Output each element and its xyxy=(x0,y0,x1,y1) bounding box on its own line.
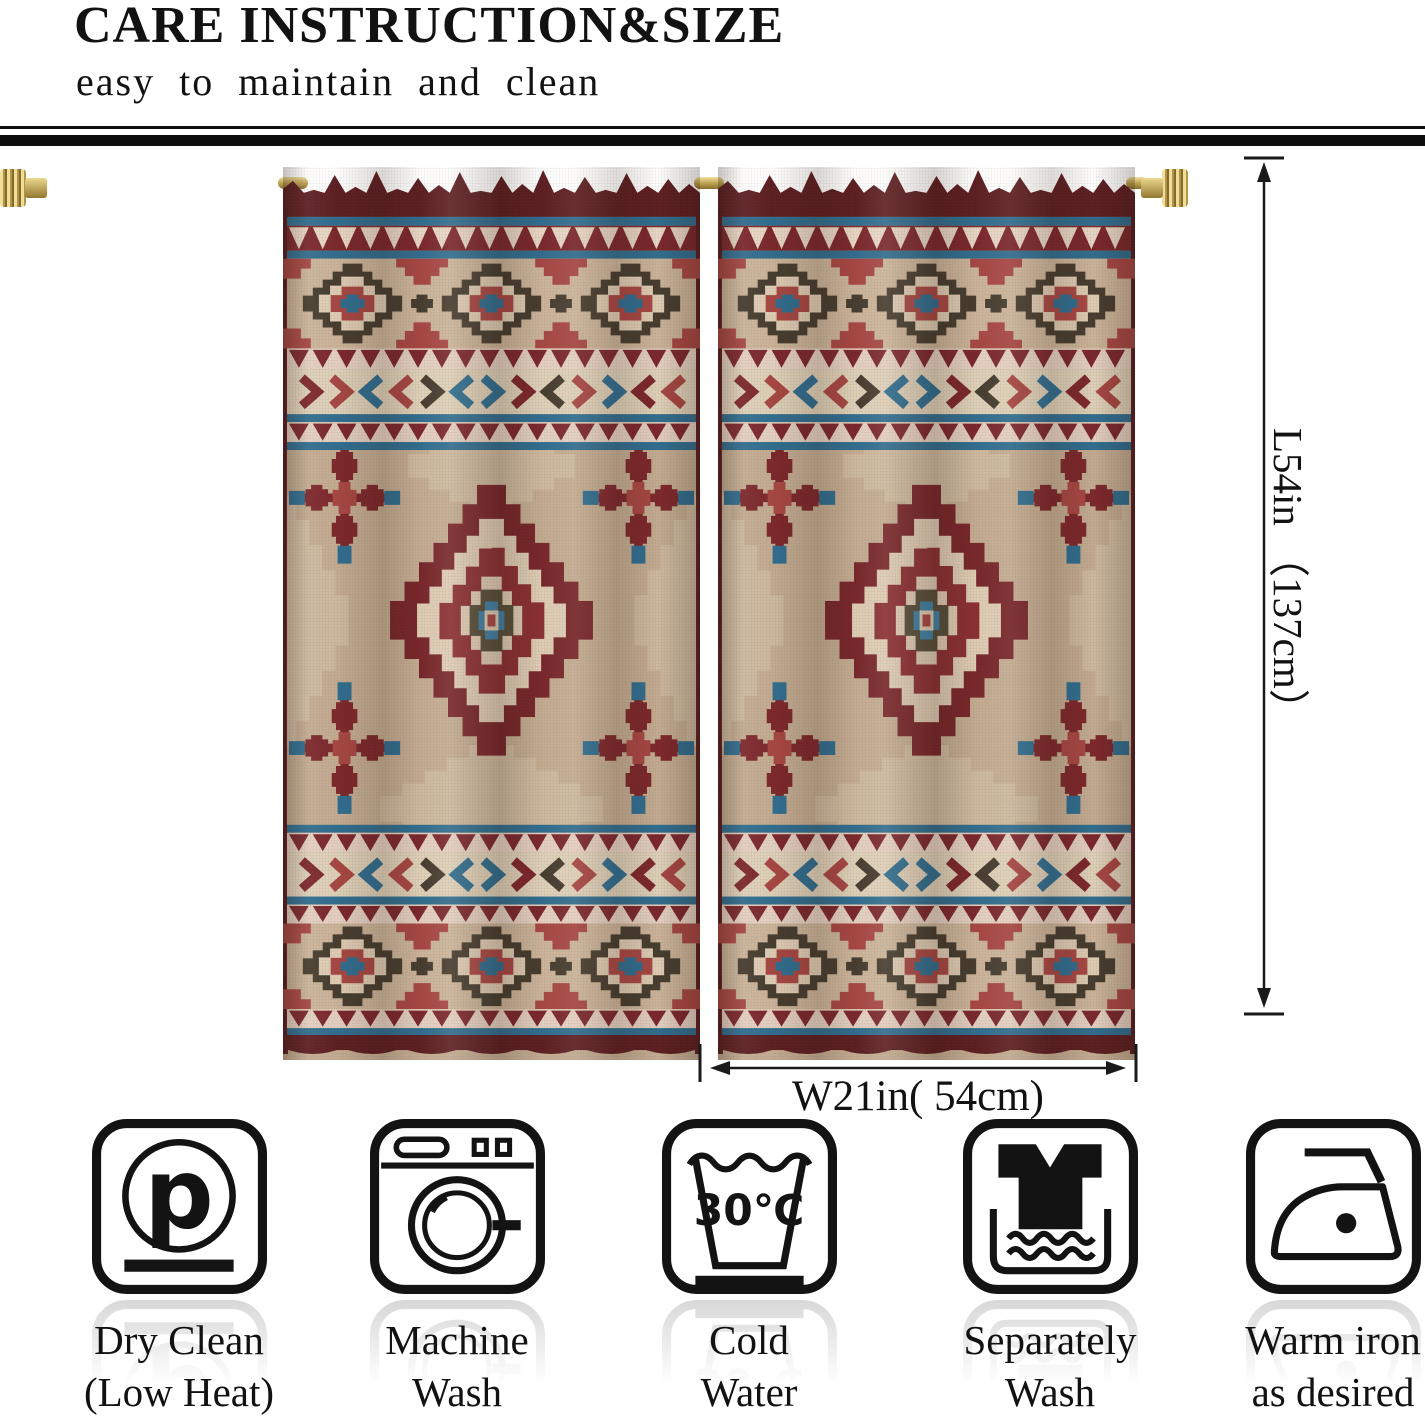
care-label: Warm iron as desired xyxy=(1228,1314,1425,1418)
care-label: Separately Wash xyxy=(945,1314,1155,1418)
care-item-dry-clean: p Dry Clean (Low Heat) xyxy=(74,1118,284,1418)
svg-text:p: p xyxy=(144,1138,214,1251)
curtain-pattern xyxy=(718,167,1135,1060)
care-item-warm-iron: Warm iron as desired xyxy=(1228,1118,1425,1418)
divider-thin xyxy=(0,126,1425,129)
rod-finial-left xyxy=(0,169,48,207)
care-item-separately-wash: Separately Wash xyxy=(945,1118,1155,1418)
length-dimension-arrow xyxy=(1240,150,1300,1022)
rod-finial-right xyxy=(1140,169,1188,207)
curtain-panel-right xyxy=(718,167,1135,1060)
width-dimension-arrow xyxy=(688,1042,1148,1090)
care-label: Cold Water xyxy=(644,1314,854,1418)
curtain-pattern xyxy=(283,167,700,1060)
warm-iron-icon xyxy=(1245,1118,1422,1295)
product-infographic: CARE INSTRUCTION&SIZE easy to maintain a… xyxy=(0,0,1425,1413)
separately-wash-icon xyxy=(962,1118,1139,1295)
care-label: Dry Clean (Low Heat) xyxy=(74,1314,284,1418)
machine-wash-icon xyxy=(369,1118,546,1295)
care-label: Machine Wash xyxy=(352,1314,562,1418)
svg-text:30℃: 30℃ xyxy=(693,1187,804,1236)
care-item-cold-water: 30℃ Cold Water xyxy=(644,1118,854,1418)
dry-clean-icon: p xyxy=(91,1118,268,1295)
cold-water-icon: 30℃ xyxy=(661,1118,838,1295)
page-subtitle: easy to maintain and clean xyxy=(76,58,600,105)
page-title: CARE INSTRUCTION&SIZE xyxy=(74,0,784,55)
divider-thick xyxy=(0,135,1425,146)
care-item-machine-wash: Machine Wash xyxy=(352,1118,562,1418)
curtain-panel-left xyxy=(283,167,700,1060)
